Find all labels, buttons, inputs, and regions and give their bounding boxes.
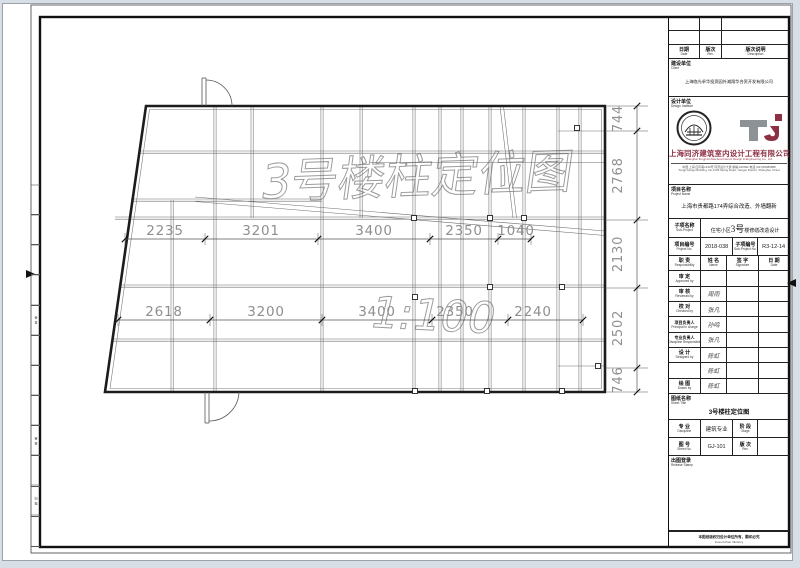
drawing-viewer-canvas: { "left_strip": { "items": [ {"label": "… xyxy=(0,0,800,568)
revision-table: 日期 Date 版次 Rev. 版次说明 Description xyxy=(669,17,789,59)
personnel-header-row: 职 责Responsibility 姓 名Name 签 字Signature 日… xyxy=(669,256,789,271)
dim-bottom-4: 2350 xyxy=(436,304,474,320)
dim-bottom-1: 2618 xyxy=(145,304,183,320)
binding-strip-cell xyxy=(31,517,40,547)
binding-strip-label: 会 签 xyxy=(34,316,37,324)
revision-header-row: 日期 Date 版次 Rev. 版次说明 Description xyxy=(669,45,789,58)
institute-name-en: Shanghai Tongji Architectural Interior D… xyxy=(669,157,789,161)
binding-strip-cell xyxy=(31,366,40,396)
door-bottom xyxy=(205,392,239,423)
project-no-value: 2018-038 xyxy=(705,244,728,250)
dimension-chain-right: 744 2768 2130 2502 746 xyxy=(605,103,648,395)
dimension-chain-bottom: 2618 3200 3400 2350 2240 xyxy=(115,304,586,326)
footer-slogan-en: Invest Urban Vibrancy xyxy=(715,540,743,544)
release-stamp-section: 出图登录 Release Stamp xyxy=(669,456,789,531)
project-name-section: 项目名称 Project Name 上海市贵都路174弄综合改造、外墙翻新 xyxy=(669,185,789,219)
dim-top-5: 1040 xyxy=(497,223,535,239)
revision-row-empty xyxy=(669,31,789,45)
sub-project-section: 子项名称 Sub-Project 住宅小区3号楼修缮改造设计 xyxy=(669,219,789,238)
institute-seal-icon xyxy=(675,109,713,147)
personnel-row: 审 定Approved by xyxy=(669,271,789,286)
numbers-section: 项目编号 Project No. 2018-038 子项编号 Sub-Proje… xyxy=(669,238,789,256)
design-institute-section: 设计单位 Design Institute 上海同济建筑室内设计工程有限公司 S… xyxy=(669,97,789,185)
discipline-value: 建筑专业 xyxy=(706,425,728,433)
binding-strip-cell: 审 核 xyxy=(31,426,40,456)
dim-top-2: 3201 xyxy=(242,223,280,239)
dim-top-4: 2350 xyxy=(445,223,483,239)
watermark-title: 3号楼柱定位图 xyxy=(257,145,576,211)
dimension-chain-top: 2235 3201 3400 2350 1040 xyxy=(122,223,535,245)
dim-bottom-3: 3400 xyxy=(358,304,396,320)
binding-strip-cell xyxy=(31,245,40,275)
binding-strip-cell: 归 档 xyxy=(31,487,40,517)
dim-right-5: 746 xyxy=(611,366,626,393)
dim-top-1: 2235 xyxy=(146,223,184,239)
binding-strip-cell xyxy=(31,215,40,245)
institute-address: 中国 上海 四平路1239号 同济设计大厦 邮编:200092 电话:(021)… xyxy=(671,163,787,173)
discipline-section: 专 业 Discipline 建筑专业 阶 段 Stage xyxy=(669,420,789,438)
personnel-row: 审 核Reviewed by 周雨 xyxy=(669,287,789,302)
binding-strip-cell: 会 签 xyxy=(31,306,40,336)
binding-strip-label: 审 核 xyxy=(34,437,37,445)
personnel-row: 陈虹 xyxy=(669,363,789,378)
dim-right-2: 2768 xyxy=(611,157,626,193)
client-name: 上海临光卓华投资园外滩翔华合资开发有限公司 xyxy=(669,79,789,85)
project-name-value: 上海市贵都路174弄综合改造、外墙翻新 xyxy=(669,202,789,210)
personnel-table: 职 责Responsibility 姓 名Name 签 字Signature 日… xyxy=(669,256,789,394)
binding-strip-cell xyxy=(31,336,40,366)
sheet-no-value: GJ-101 xyxy=(708,444,726,450)
binding-strip-label: 归 档 xyxy=(34,497,37,505)
personnel-row: 项目负责人Principal in charge 孙鸣 xyxy=(669,317,789,332)
dim-right-1: 744 xyxy=(611,105,626,132)
sheet-no-section: 图 号 Sheet No. GJ-101 版 次 Rev. xyxy=(669,438,789,456)
personnel-row: 设 计Designed by 陈虹 xyxy=(669,348,789,363)
dim-right-3: 2130 xyxy=(611,236,626,272)
title-block: 日期 Date 版次 Rev. 版次说明 Description 建设单位 Cl… xyxy=(668,17,789,547)
binding-strip: 会 签 审 核 归 档 xyxy=(31,185,40,547)
dim-right-4: 2502 xyxy=(611,310,626,346)
binding-strip-cell xyxy=(31,396,40,426)
binding-strip-cell xyxy=(31,456,40,486)
binding-strip-cell xyxy=(31,185,40,215)
title-block-footer: 本图纸版权归设计单位所有，翻印必究 Invest Urban Vibrancy xyxy=(669,531,789,547)
door-top xyxy=(202,78,232,106)
sub-project-value: 住宅小区3号楼修缮改造设计 xyxy=(711,222,780,235)
dim-bottom-5: 2240 xyxy=(514,304,552,320)
personnel-row: 校 对Checked by 张凡 xyxy=(669,302,789,317)
revision-row-empty xyxy=(669,17,789,31)
dim-bottom-2: 3200 xyxy=(247,304,285,320)
tj-logo-icon xyxy=(739,113,783,143)
personnel-row: 专业负责人Discipline Responsible 张凡 xyxy=(669,333,789,348)
dim-top-3: 3400 xyxy=(355,223,393,239)
binding-strip-cell xyxy=(31,275,40,305)
personnel-row: 绘 图Drawn by 陈虹 xyxy=(669,379,789,393)
sheet-title-section: 图纸名称 Sheet Title 3号楼柱定位图 xyxy=(669,394,789,420)
client-section: 建设单位 Client 上海临光卓华投资园外滩翔华合资开发有限公司 xyxy=(669,59,789,97)
sub-no-value: R3-12-14 xyxy=(762,244,785,250)
sheet-title-value: 3号楼柱定位图 xyxy=(669,407,789,416)
